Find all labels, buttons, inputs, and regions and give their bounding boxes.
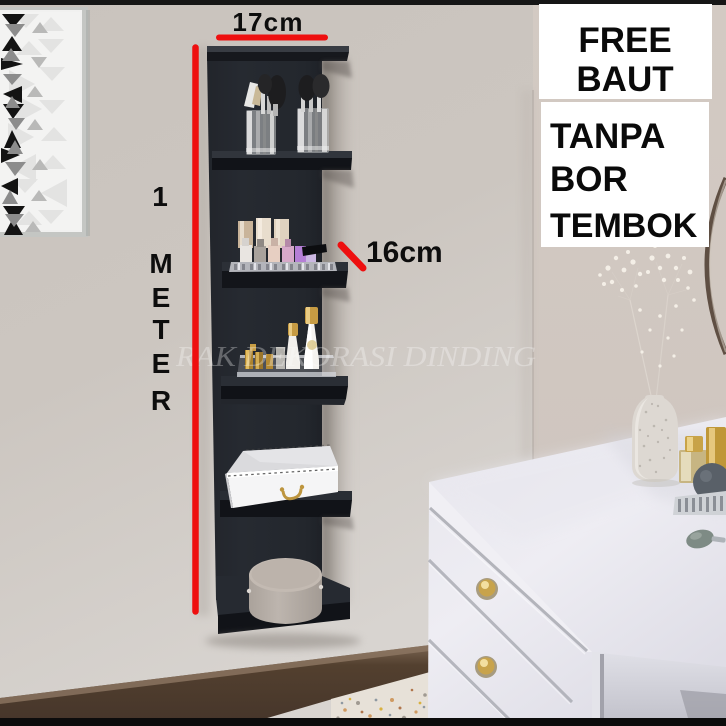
svg-text:FREE: FREE bbox=[578, 21, 671, 60]
svg-text:E: E bbox=[152, 348, 171, 379]
svg-text:R: R bbox=[151, 385, 171, 416]
svg-text:T: T bbox=[152, 314, 169, 345]
svg-text:1: 1 bbox=[152, 181, 168, 212]
svg-text:TEMBOK: TEMBOK bbox=[550, 207, 698, 245]
svg-text:E: E bbox=[152, 282, 171, 313]
svg-text:16cm: 16cm bbox=[366, 236, 443, 269]
svg-text:BAUT: BAUT bbox=[576, 60, 673, 99]
svg-text:BOR: BOR bbox=[550, 160, 628, 199]
svg-text:17cm: 17cm bbox=[232, 7, 303, 37]
svg-text:TANPA: TANPA bbox=[550, 117, 665, 156]
svg-text:RAK DEKORASI DINDING: RAK DEKORASI DINDING bbox=[175, 342, 536, 373]
svg-text:M: M bbox=[149, 248, 172, 279]
